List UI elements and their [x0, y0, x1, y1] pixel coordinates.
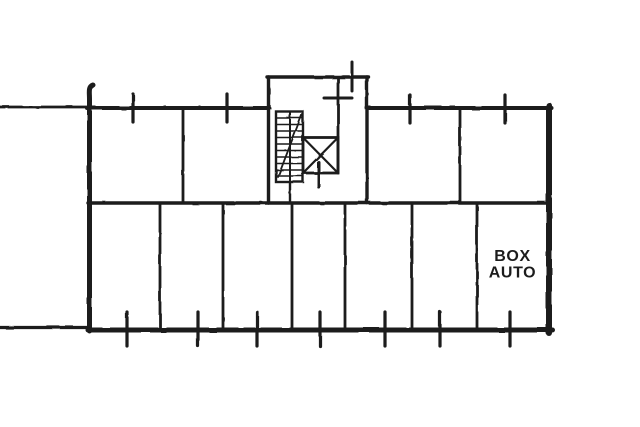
garage-floorplan-drawing: BOX AUTO	[0, 0, 640, 427]
room-label-line1: BOX	[494, 248, 530, 265]
floorplan-canvas: BOX AUTO	[0, 0, 640, 427]
room-label-box-auto: BOX AUTO	[489, 248, 536, 282]
room-label-line2: AUTO	[489, 265, 536, 282]
paper-background	[0, 0, 640, 427]
